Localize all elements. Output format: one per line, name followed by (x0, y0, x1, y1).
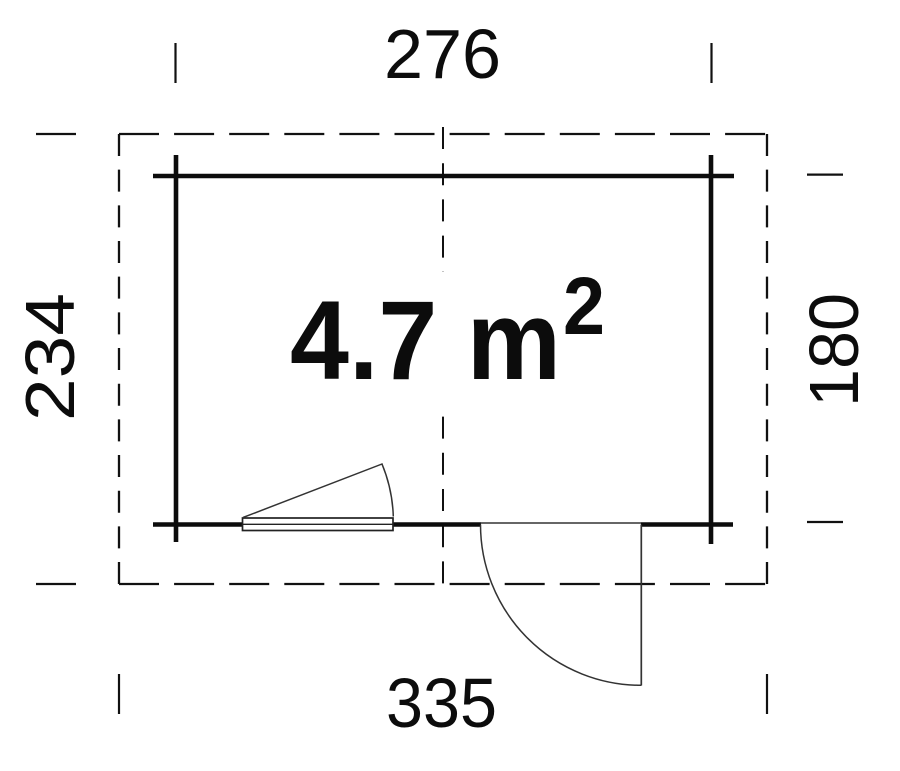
svg-text:335: 335 (386, 664, 497, 742)
svg-text:2: 2 (563, 261, 605, 352)
svg-text:180: 180 (795, 293, 873, 407)
svg-text:234: 234 (11, 293, 89, 421)
svg-text:4.7 m: 4.7 m (290, 278, 561, 403)
svg-text:276: 276 (384, 15, 501, 93)
